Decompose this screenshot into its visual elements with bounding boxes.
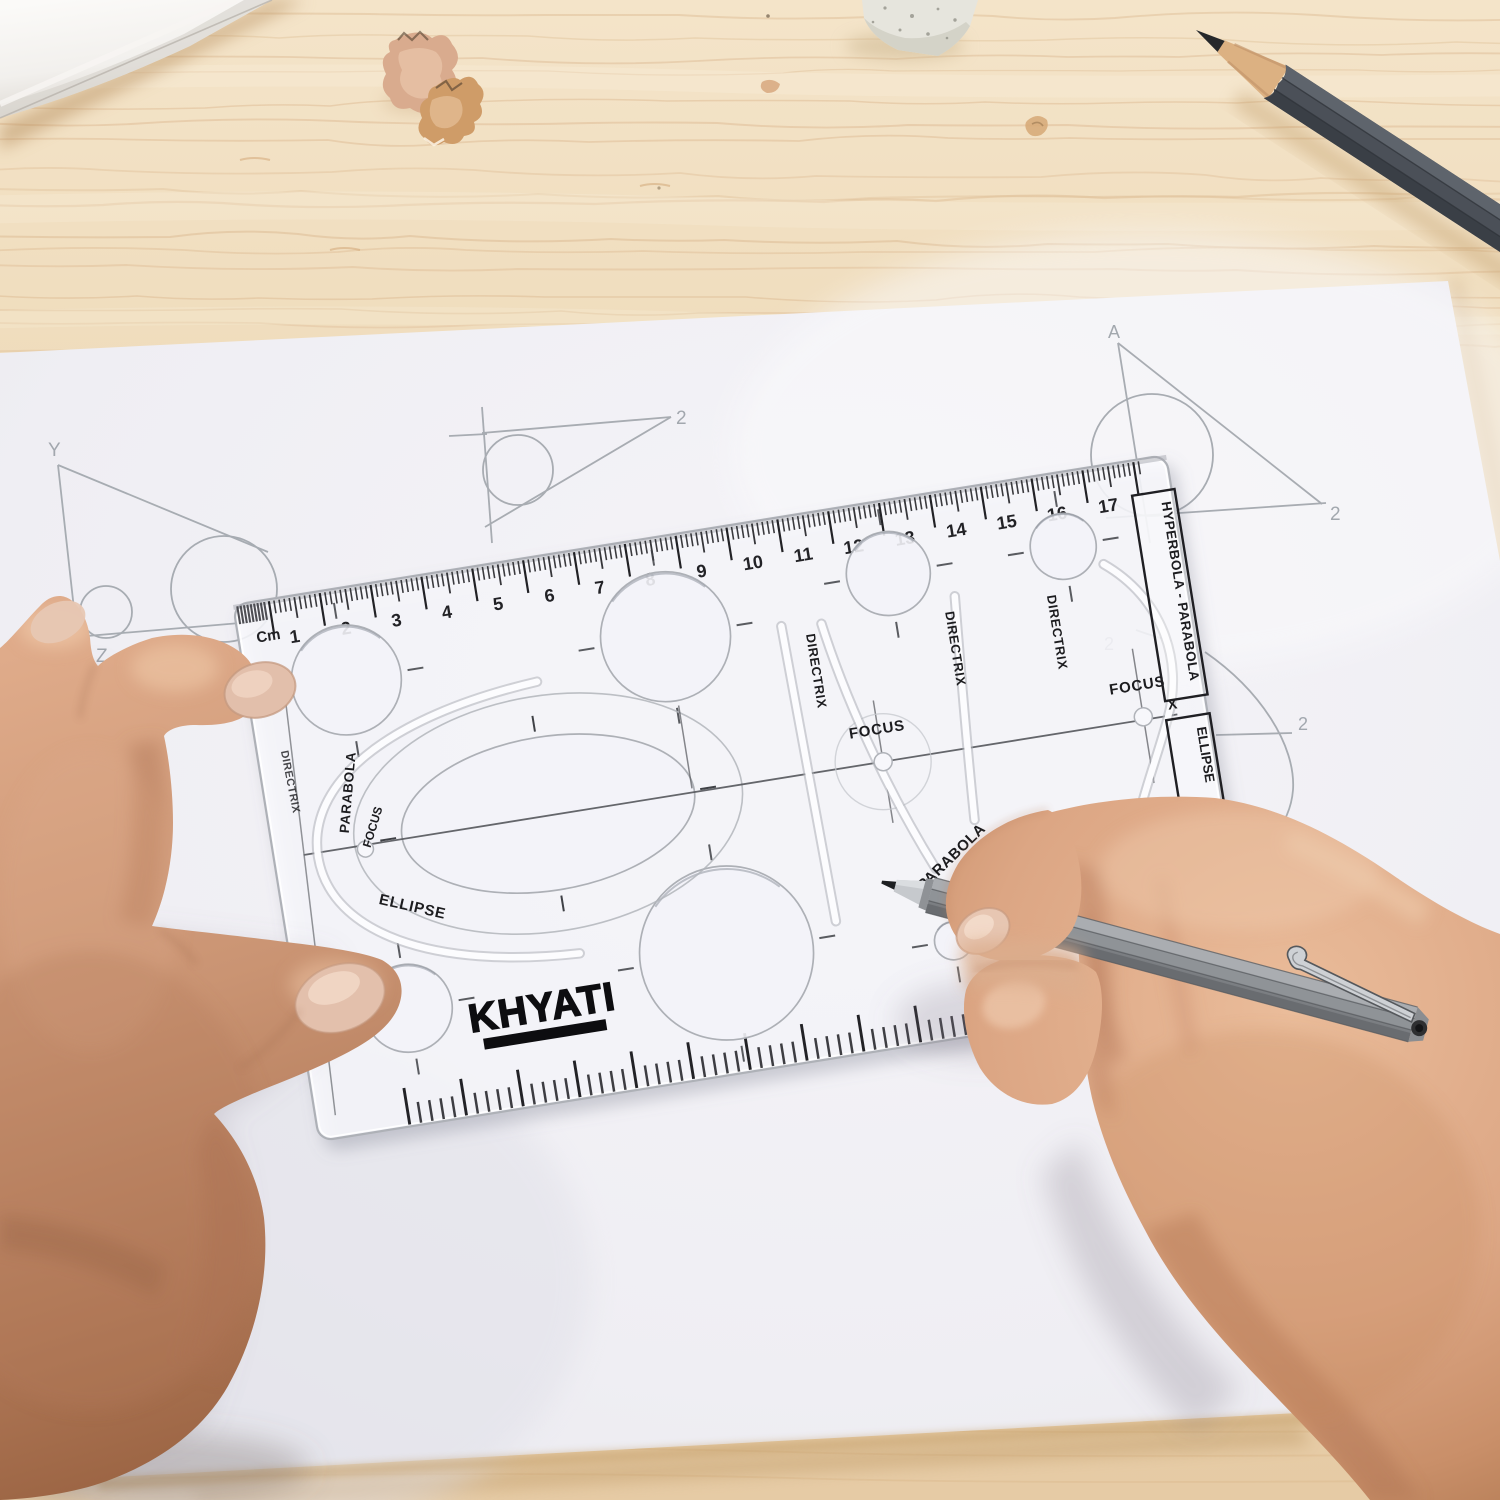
svg-text:17: 17	[1097, 494, 1120, 517]
svg-text:Y: Y	[48, 440, 61, 461]
svg-text:2: 2	[1330, 504, 1341, 525]
svg-text:14: 14	[945, 519, 968, 542]
svg-text:2: 2	[676, 408, 687, 429]
svg-text:A: A	[1108, 322, 1120, 342]
svg-text:15: 15	[995, 511, 1018, 534]
svg-text:11: 11	[792, 543, 814, 566]
svg-text:10: 10	[741, 551, 764, 574]
svg-text:2: 2	[1298, 714, 1308, 734]
